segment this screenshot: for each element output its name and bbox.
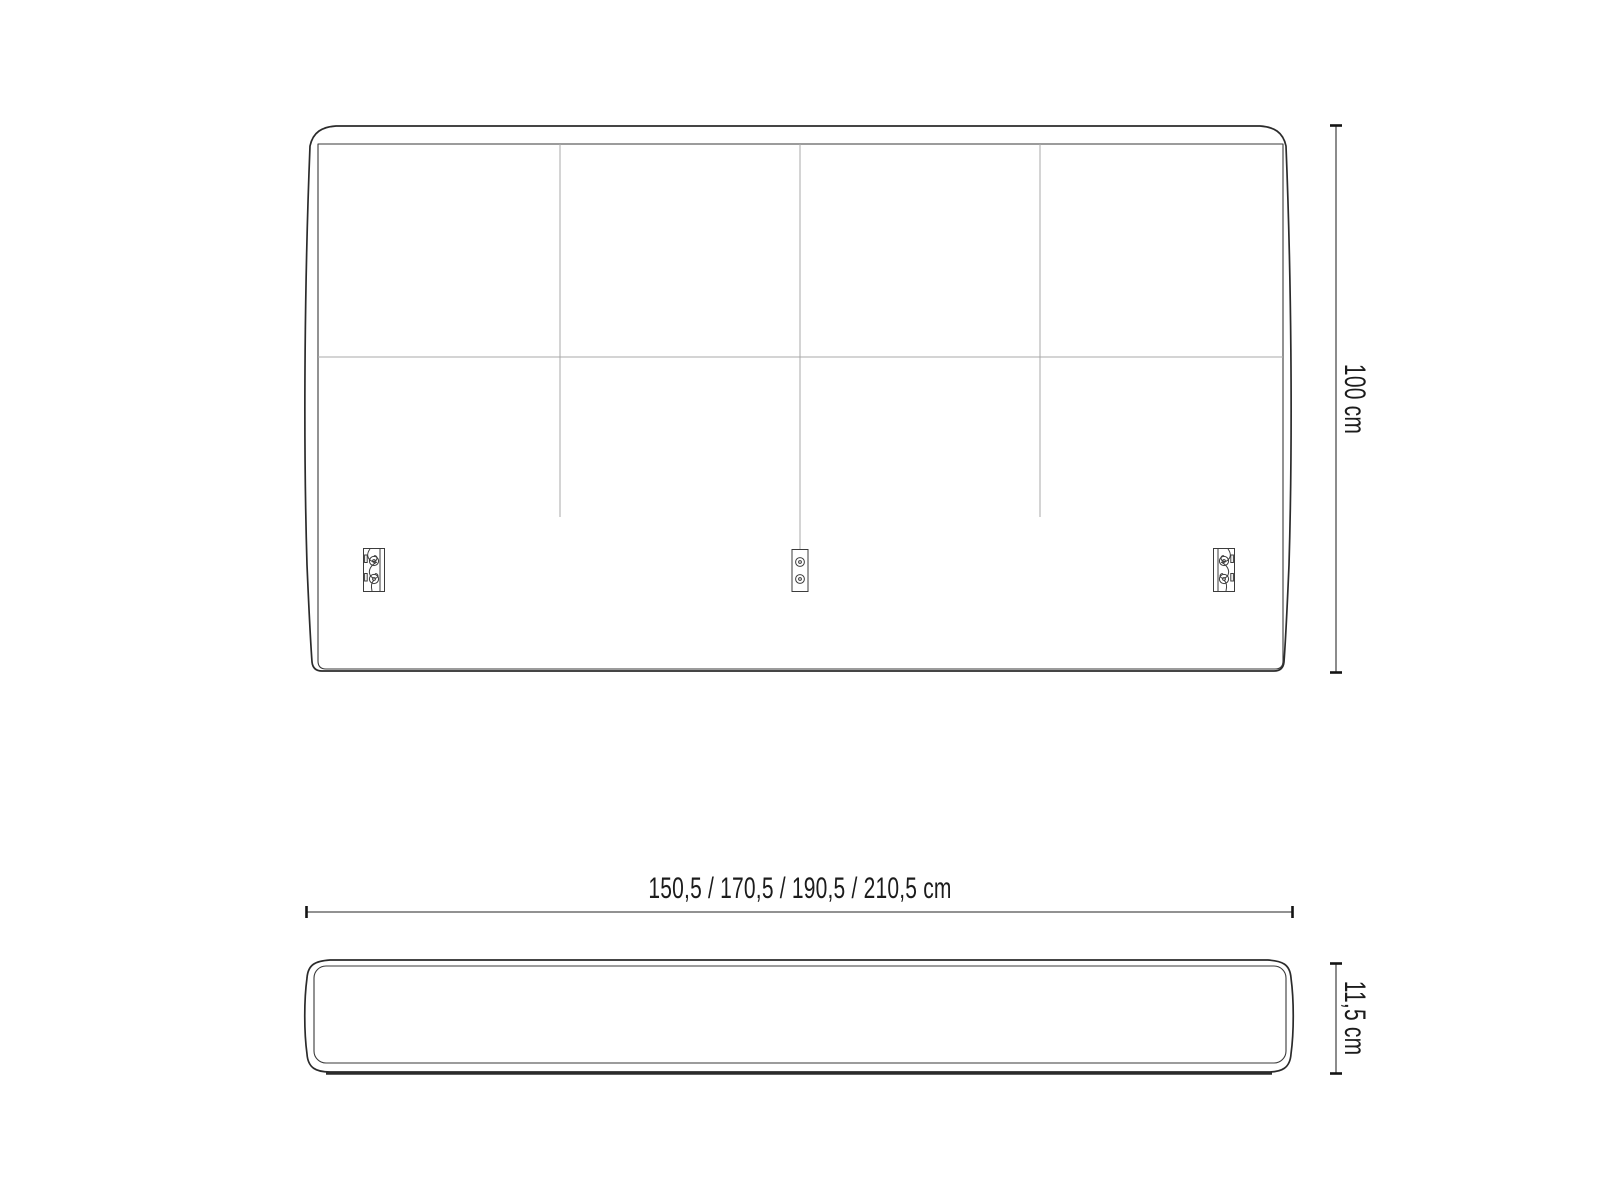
mounting-bracket-right (1214, 549, 1235, 592)
width-dimension-label: 150,5 / 170,5 / 190,5 / 210,5 cm (648, 872, 951, 906)
side-view-outline (305, 960, 1294, 1072)
mounting-bracket-center (792, 550, 808, 592)
front-view (305, 126, 1291, 671)
depth-dimension-label: 11,5 cm (1337, 981, 1371, 1056)
width-dimension (306, 906, 1293, 918)
height-dimension-label: 100 cm (1337, 364, 1371, 434)
side-view (305, 960, 1294, 1074)
technical-drawing-canvas: 150,5 / 170,5 / 190,5 / 210,5 cm 100 cm … (0, 0, 1600, 1200)
mounting-bracket-left (364, 549, 385, 592)
